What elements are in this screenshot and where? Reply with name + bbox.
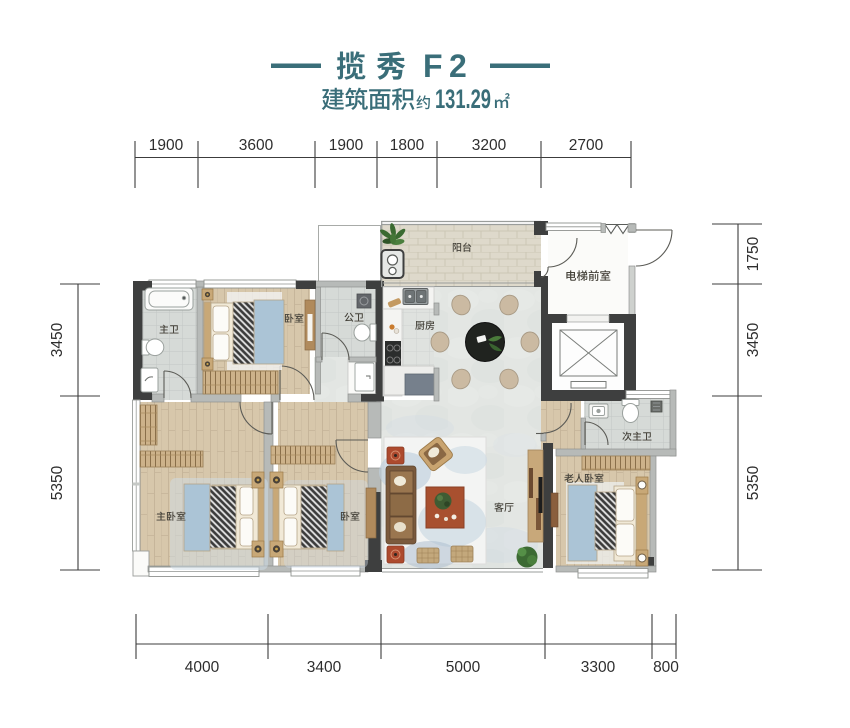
svg-text:2: 2 [449, 48, 467, 84]
svg-text:3450: 3450 [745, 322, 762, 357]
svg-text:5000: 5000 [446, 659, 481, 676]
svg-text:1900: 1900 [329, 137, 364, 154]
svg-text:5350: 5350 [49, 465, 66, 500]
svg-text:131.29: 131.29 [435, 84, 491, 114]
svg-text:1800: 1800 [390, 137, 425, 154]
svg-text:4000: 4000 [185, 659, 220, 676]
svg-text:2700: 2700 [569, 137, 604, 154]
svg-text:1900: 1900 [149, 137, 184, 154]
svg-text:3600: 3600 [239, 137, 274, 154]
svg-text:3450: 3450 [49, 322, 66, 357]
svg-text:3200: 3200 [472, 137, 507, 154]
svg-text:F: F [423, 48, 443, 84]
svg-text:800: 800 [653, 659, 679, 676]
svg-text:3400: 3400 [307, 659, 342, 676]
svg-text:3300: 3300 [581, 659, 616, 676]
svg-text:5350: 5350 [745, 465, 762, 500]
svg-text:1750: 1750 [745, 236, 762, 271]
